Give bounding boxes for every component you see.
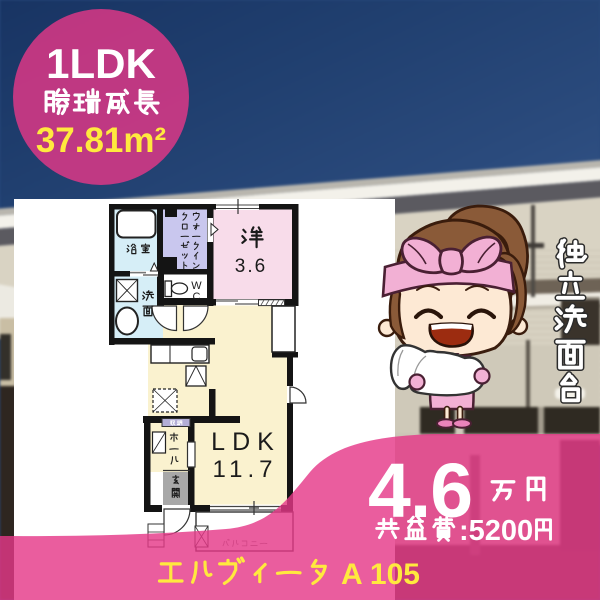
svg-text::5200: :5200: [459, 515, 533, 547]
svg-text:A 105: A 105: [341, 558, 420, 591]
